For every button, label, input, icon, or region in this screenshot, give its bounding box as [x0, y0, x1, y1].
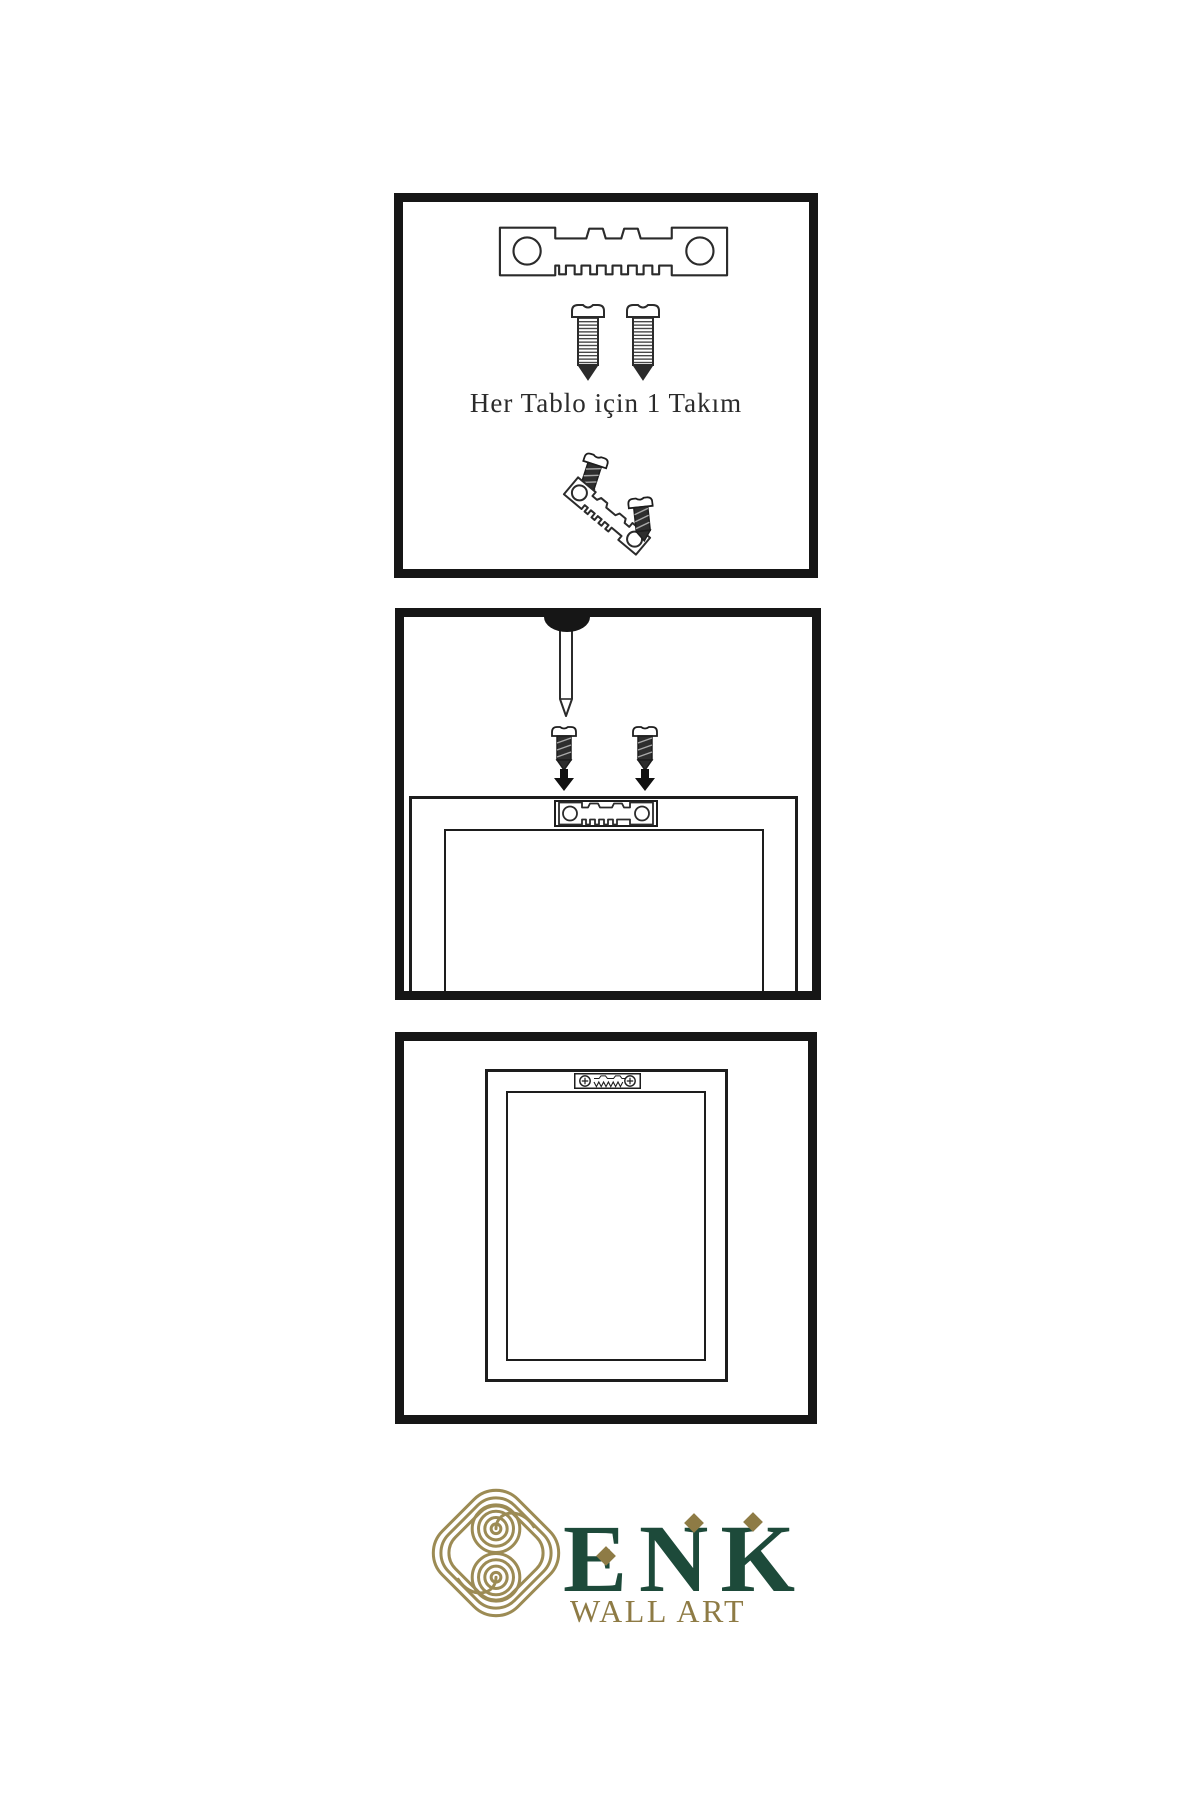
dark-screw-icon [551, 725, 577, 771]
installed-sawtooth-hanger-icon [574, 1073, 641, 1089]
sawtooth-hanger-icon [497, 223, 730, 280]
sawtooth-hanger-plate-icon [554, 800, 658, 827]
frame-inner-outline [444, 829, 764, 991]
screw-icon [625, 303, 661, 381]
frame-inner-outline [506, 1091, 706, 1361]
step2-panel [395, 608, 821, 1000]
step1-panel: Her Tablo için 1 Takım [394, 193, 818, 578]
step1-caption: Her Tablo için 1 Takım [403, 388, 809, 419]
instruction-sheet: Her Tablo için 1 Takım [0, 0, 1200, 1800]
down-arrow-icon [554, 769, 574, 791]
dark-screw-icon [627, 494, 658, 544]
down-arrow-icon [635, 769, 655, 791]
screw-icon [570, 303, 606, 381]
interlocking-knot-icon [428, 1484, 564, 1622]
wall-nail-icon [558, 621, 574, 717]
step3-panel [395, 1032, 817, 1424]
brand-subtitle: WALL ART [570, 1595, 746, 1627]
dark-screw-icon [632, 725, 658, 771]
nail-head-in-wall [544, 617, 590, 632]
